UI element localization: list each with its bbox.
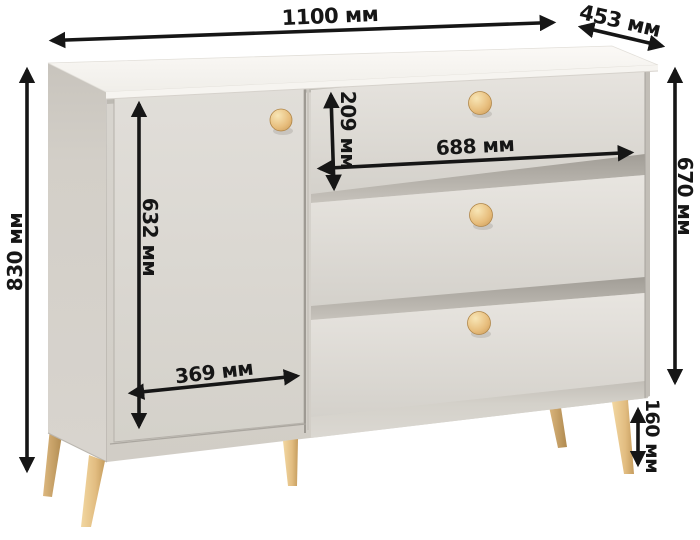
dimension-diagram: 1100 мм 453 мм 830 мм 670 мм 632 мм 209 … <box>0 0 700 540</box>
drawer-1-knob <box>469 92 492 115</box>
dim-label-overall-height: 830 мм <box>3 213 27 291</box>
drawer-2-knob <box>470 204 493 227</box>
dim-label-door-height: 632 мм <box>138 198 162 276</box>
dim-label-top-drawer-height: 209 мм <box>336 91 360 169</box>
drawer-3-knob <box>468 312 491 335</box>
dim-label-right-height: 670 мм <box>673 157 697 235</box>
side-panel <box>48 63 107 462</box>
door-knob <box>270 109 292 131</box>
front-right-leg <box>612 400 634 474</box>
commode-illustration <box>0 0 700 540</box>
middle-leg <box>283 439 298 486</box>
dim-label-leg-height: 160 мм <box>641 399 663 473</box>
dim-label-drawer-width: 688 мм <box>435 132 515 160</box>
dim-label-top-width: 1100 мм <box>281 2 379 30</box>
front-left-leg <box>81 455 105 527</box>
